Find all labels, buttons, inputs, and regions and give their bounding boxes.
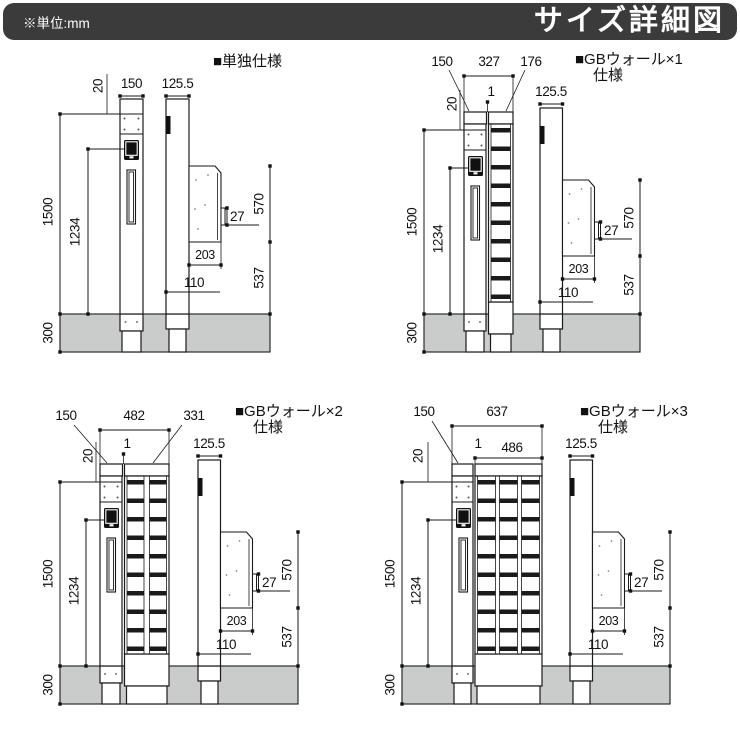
dim-top-offset: 20 <box>445 97 460 111</box>
side-bracket <box>540 126 545 144</box>
dim-device-height: 1234 <box>409 576 424 605</box>
side-bracket <box>198 478 203 496</box>
spec-label: ■単独仕様 <box>213 53 282 70</box>
dim-total-height: 1500 <box>41 198 56 226</box>
dim-panel-height: 570 <box>622 207 637 228</box>
gb-wall <box>475 476 542 654</box>
function-panel <box>189 166 225 242</box>
dim-gap: 1 <box>123 436 130 451</box>
dim-clear: 110 <box>216 637 236 652</box>
dim-embed-depth: 300 <box>383 674 398 695</box>
dim-top-offset: 20 <box>91 79 106 93</box>
side-bracket <box>166 116 171 134</box>
dim-bracket: 27 <box>262 575 276 590</box>
dim-device-height: 1234 <box>68 217 83 246</box>
side-view-post <box>540 108 599 314</box>
dim-overall-width: 482 <box>123 408 144 423</box>
dim-gap: 1 <box>487 84 494 99</box>
spec-label: ■GBウォール×1 <box>575 51 683 68</box>
header-bar: ※単位:mm サイズ詳細図 <box>3 3 737 40</box>
dim-panel-depth: 203 <box>227 614 247 628</box>
dim-wall-width: 331 <box>183 408 204 423</box>
ground <box>60 314 270 352</box>
dim-wall-width: 176 <box>520 54 541 69</box>
gb-wall <box>125 476 170 654</box>
dim-device-height: 1234 <box>431 224 446 253</box>
side-view-post <box>570 460 629 666</box>
unit-note: ※単位:mm <box>23 12 90 32</box>
dim-total-height: 1500 <box>41 560 56 588</box>
dim-panel-height: 570 <box>252 193 267 214</box>
dimension-lines <box>422 70 641 354</box>
dim-wall-width: 486 <box>501 440 522 455</box>
dim-total-height: 1500 <box>383 560 398 588</box>
dimension-lines <box>58 425 299 706</box>
intercom-unit <box>456 508 471 528</box>
nameplate-slot <box>127 170 136 224</box>
dim-side-width: 125.5 <box>535 84 567 99</box>
dim-panel-height: 570 <box>280 559 295 580</box>
intercom-unit <box>124 140 139 160</box>
dim-post-width: 150 <box>413 404 434 419</box>
diagram-gbwall-x2: ■GBウォール×2 仕様 150 482 331 1 20 125.5 1500… <box>8 396 368 741</box>
dim-side-width: 125.5 <box>565 436 597 451</box>
function-panel <box>563 180 599 256</box>
dim-gap: 1 <box>474 436 481 451</box>
dim-post-width: 150 <box>121 76 142 91</box>
dim-panel-depth: 203 <box>195 248 215 262</box>
dim-post-width: 150 <box>55 408 76 423</box>
dim-overall-width: 327 <box>478 54 499 69</box>
dim-top-offset: 20 <box>411 449 426 463</box>
dim-clear: 110 <box>184 275 204 290</box>
intercom-unit <box>104 508 119 528</box>
function-panel <box>593 532 629 608</box>
side-view-post <box>198 460 257 666</box>
dim-clear: 110 <box>558 285 578 300</box>
function-panel <box>221 532 257 608</box>
spec-label-2: 仕様 <box>598 419 628 436</box>
dim-lower-height: 537 <box>252 267 267 288</box>
spec-label-2: 仕様 <box>593 67 623 84</box>
diagram-gbwall-x1: ■GBウォール×1 仕様 150 327 176 1 20 125.5 1500… <box>372 44 732 389</box>
ground <box>60 666 298 704</box>
diagram-standalone: ■単独仕様 150 125.5 20 1500 1234 570 27 203 … <box>8 44 368 389</box>
dim-side-width: 125.5 <box>193 436 225 451</box>
dim-post-width: 150 <box>431 54 452 69</box>
dim-lower-height: 537 <box>622 274 637 295</box>
dim-overall-width: 637 <box>486 404 507 419</box>
dim-bracket: 27 <box>634 575 648 590</box>
page-title: サイズ詳細図 <box>534 7 725 36</box>
front-view-post <box>120 99 143 314</box>
intercom-unit <box>468 156 483 176</box>
dim-embed-depth: 300 <box>41 674 56 695</box>
dim-bracket: 27 <box>230 209 244 224</box>
dim-lower-height: 537 <box>280 626 295 647</box>
dim-device-height: 1234 <box>67 576 82 605</box>
spec-label: ■GBウォール×3 <box>580 403 688 420</box>
side-bracket <box>570 478 575 496</box>
dim-side-width: 125.5 <box>162 76 194 91</box>
dim-lower-height: 537 <box>652 626 667 647</box>
dim-total-height: 1500 <box>405 208 420 236</box>
dim-embed-depth: 300 <box>41 322 56 343</box>
nameplate-slot <box>107 538 116 592</box>
dim-top-offset: 20 <box>81 449 96 463</box>
ground <box>424 314 640 352</box>
dim-clear: 110 <box>588 637 608 652</box>
diagram-gbwall-x3: ■GBウォール×3 仕様 150 637 486 1 20 125.5 1500… <box>372 396 732 741</box>
spec-label: ■GBウォール×2 <box>235 403 343 420</box>
dim-panel-depth: 203 <box>569 262 589 276</box>
nameplate-slot <box>471 186 480 240</box>
dim-bracket: 27 <box>604 223 618 238</box>
dim-panel-height: 570 <box>652 559 667 580</box>
dim-embed-depth: 300 <box>405 322 420 343</box>
nameplate-slot <box>459 538 468 592</box>
gb-wall <box>489 124 514 302</box>
dim-panel-depth: 203 <box>599 614 619 628</box>
spec-label-2: 仕様 <box>253 419 283 436</box>
